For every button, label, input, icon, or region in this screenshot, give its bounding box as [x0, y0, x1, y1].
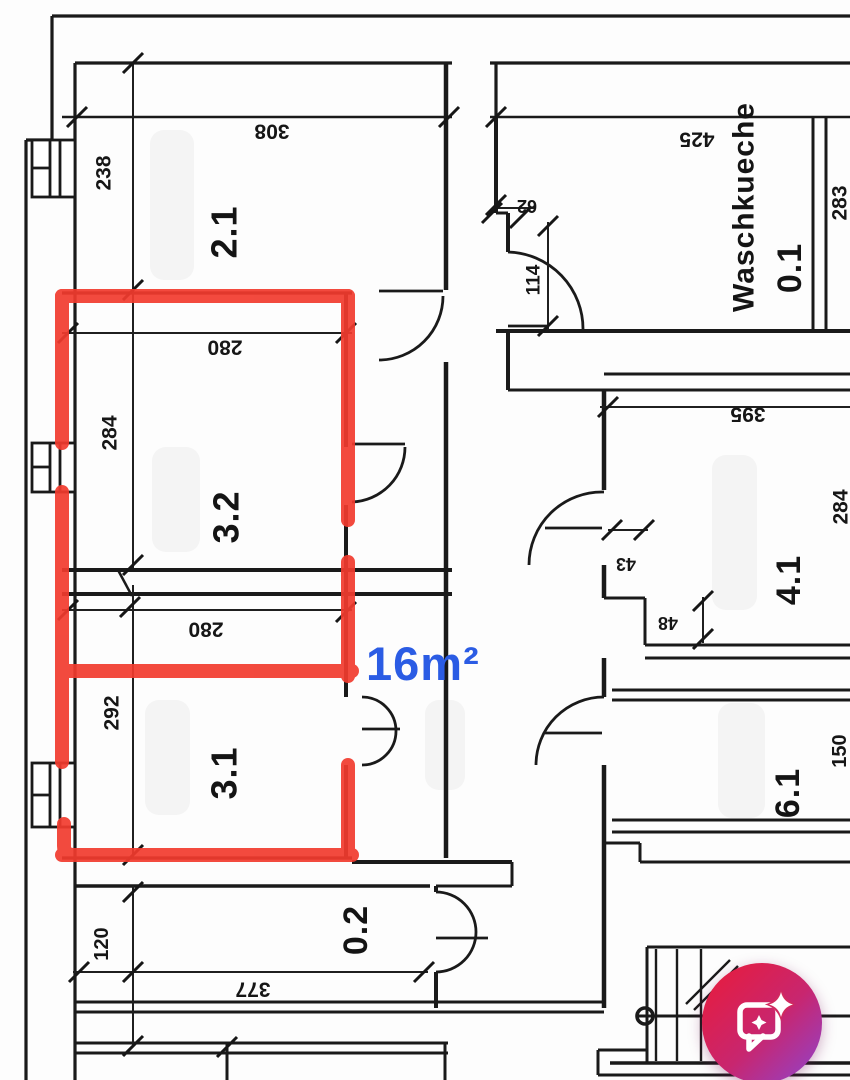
dim-label-recess-4-1: 43	[616, 554, 636, 574]
dim-label-height-0-2: 120	[91, 927, 113, 960]
room-label-3-1: 3.1	[204, 746, 245, 799]
dim-label-door: 114	[524, 264, 545, 295]
chat-assistant-button[interactable]	[702, 963, 822, 1080]
room-label-0-2: 0.2	[337, 905, 375, 955]
room-label-waschkueche: Waschkueche	[728, 102, 761, 312]
dim-label-height-4-1: 284	[830, 489, 850, 524]
dim-label-width-3-2: 280	[207, 336, 242, 359]
room-label-2-1: 2.1	[204, 205, 245, 258]
dim-label-step-4-1: 48	[658, 613, 678, 633]
room-label-4-1: 4.1	[770, 555, 808, 605]
room-label-3-2: 3.2	[206, 490, 247, 543]
dim-label-jog: 62	[517, 196, 537, 216]
door-arc	[436, 892, 488, 972]
door-arc	[536, 697, 604, 765]
door-arc	[379, 291, 443, 360]
dim-label-height-2-1: 238	[93, 155, 116, 190]
floor-plan-screenshot: 308 238 280 284 280 292 377 120 425 283 …	[0, 0, 850, 1080]
door-arc	[529, 492, 604, 565]
dim-label-height-3-1: 292	[101, 695, 124, 730]
dim-label-width-3-1: 280	[188, 618, 223, 641]
dim-label-height-waschkueche: 283	[829, 185, 850, 220]
door-arc	[352, 444, 405, 502]
window-icon	[32, 443, 75, 492]
window-icon	[32, 763, 75, 827]
door-arc	[508, 252, 583, 330]
dim-label-width-4-1: 395	[730, 403, 765, 426]
dim-label-width-0-2: 377	[235, 978, 270, 1001]
chat-sparkle-icon	[730, 991, 794, 1055]
room-label-6-1: 6.1	[769, 768, 807, 818]
door-arc	[362, 697, 400, 765]
floor-plan-drawing: 308 238 280 284 280 292 377 120 425 283 …	[0, 0, 850, 1080]
window-icon	[32, 140, 75, 197]
dim-label-width-waschkueche: 425	[679, 128, 714, 151]
dim-label-height-3-2: 284	[99, 415, 122, 450]
room-label-0-1: 0.1	[771, 243, 809, 293]
dim-label-height-6-1: 150	[829, 734, 850, 767]
area-annotation: 16m²	[366, 637, 480, 690]
dim-label-width-2-1: 308	[254, 120, 289, 143]
